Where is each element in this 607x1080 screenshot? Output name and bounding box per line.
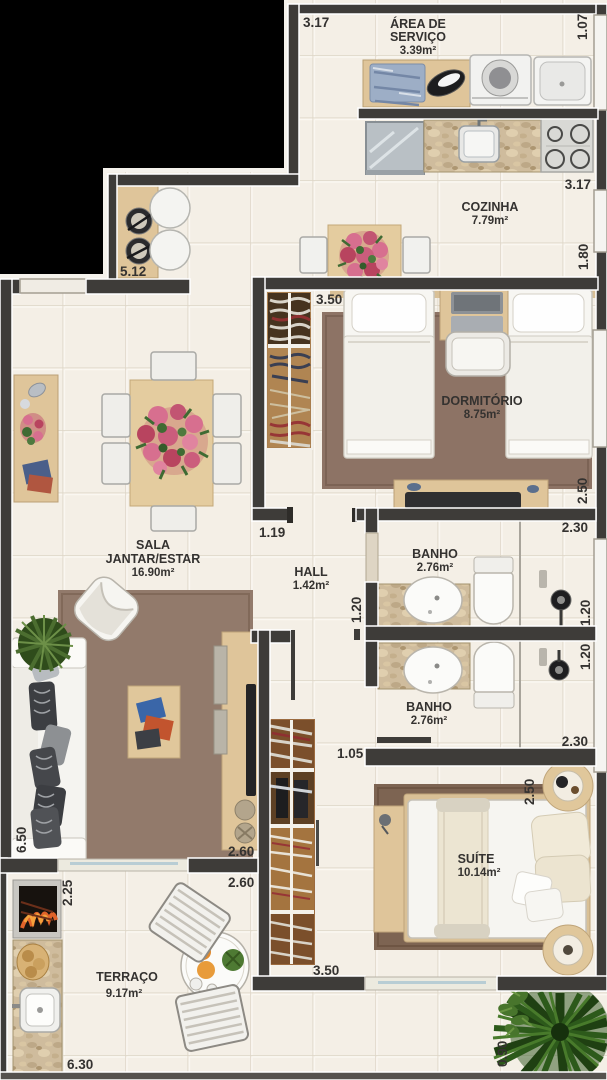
svg-text:2.76m²: 2.76m² bbox=[417, 562, 454, 574]
svg-text:2.30: 2.30 bbox=[562, 520, 588, 535]
svg-text:SALA: SALA bbox=[136, 538, 170, 552]
svg-text:1.20: 1.20 bbox=[349, 597, 364, 623]
svg-text:3.17: 3.17 bbox=[303, 15, 329, 30]
svg-text:ÁREA DE: ÁREA DE bbox=[390, 16, 446, 31]
svg-text:5.12: 5.12 bbox=[120, 264, 146, 279]
svg-text:3.39m²: 3.39m² bbox=[400, 45, 437, 57]
svg-text:2.50: 2.50 bbox=[522, 779, 537, 805]
svg-text:2.30: 2.30 bbox=[562, 734, 588, 749]
svg-text:6.30: 6.30 bbox=[67, 1057, 93, 1072]
svg-text:3.17: 3.17 bbox=[565, 177, 591, 192]
svg-text:1.42m²: 1.42m² bbox=[293, 580, 330, 592]
svg-text:0.90: 0.90 bbox=[495, 1041, 510, 1067]
svg-text:2.25: 2.25 bbox=[60, 879, 75, 906]
svg-text:8.75m²: 8.75m² bbox=[464, 409, 501, 421]
svg-text:BANHO: BANHO bbox=[406, 700, 452, 714]
svg-text:DORMITÓRIO: DORMITÓRIO bbox=[441, 393, 523, 408]
svg-text:2.50: 2.50 bbox=[575, 478, 590, 504]
svg-text:HALL: HALL bbox=[294, 565, 328, 579]
svg-text:TERRAÇO: TERRAÇO bbox=[96, 970, 158, 984]
svg-text:1.80: 1.80 bbox=[576, 244, 591, 270]
svg-text:1.07: 1.07 bbox=[575, 14, 590, 40]
svg-text:COZINHA: COZINHA bbox=[462, 200, 519, 214]
svg-text:SERVIÇO: SERVIÇO bbox=[390, 30, 446, 44]
svg-text:BANHO: BANHO bbox=[412, 547, 458, 561]
svg-text:2.60: 2.60 bbox=[228, 875, 254, 890]
svg-text:JANTAR/ESTAR: JANTAR/ESTAR bbox=[106, 552, 201, 566]
svg-text:1.20: 1.20 bbox=[578, 644, 593, 670]
svg-text:2.76m²: 2.76m² bbox=[411, 715, 448, 727]
svg-text:2.60: 2.60 bbox=[228, 844, 254, 859]
svg-text:7.79m²: 7.79m² bbox=[472, 215, 509, 227]
svg-text:16.90m²: 16.90m² bbox=[132, 567, 175, 579]
svg-text:6.50: 6.50 bbox=[14, 827, 29, 853]
svg-text:3.50: 3.50 bbox=[316, 292, 342, 307]
svg-text:1.05: 1.05 bbox=[337, 746, 364, 761]
svg-text:3.50: 3.50 bbox=[313, 963, 339, 978]
svg-text:9.17m²: 9.17m² bbox=[106, 988, 143, 1000]
svg-text:1.20: 1.20 bbox=[578, 600, 593, 626]
svg-text:10.14m²: 10.14m² bbox=[458, 867, 501, 879]
svg-text:1.19: 1.19 bbox=[259, 525, 285, 540]
svg-text:SUÍTE: SUÍTE bbox=[458, 851, 495, 866]
